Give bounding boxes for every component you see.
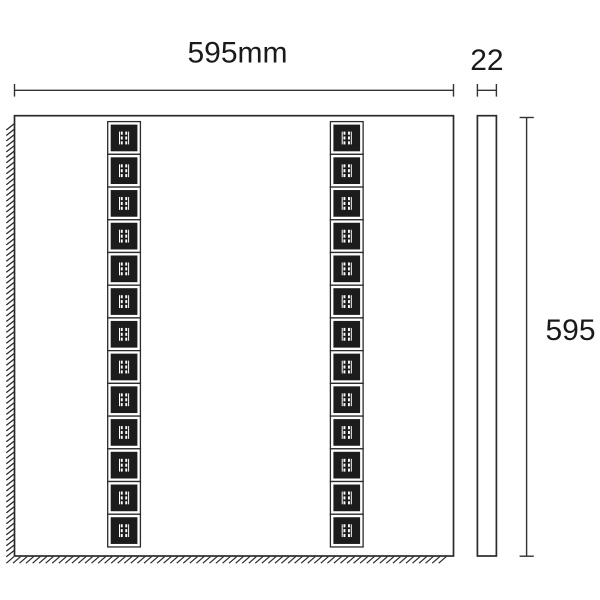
- svg-text:595: 595: [545, 314, 595, 347]
- svg-text:22: 22: [470, 44, 503, 77]
- svg-text:595mm: 595mm: [187, 37, 287, 70]
